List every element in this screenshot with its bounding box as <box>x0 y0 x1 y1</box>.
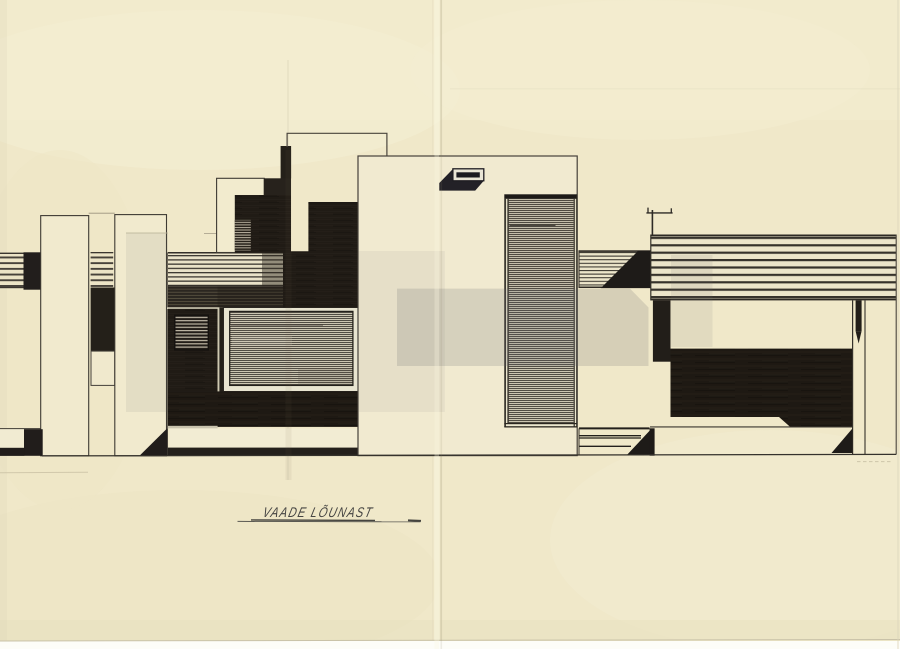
svg-text:VAADE LÕUNAST: VAADE LÕUNAST <box>261 504 375 521</box>
